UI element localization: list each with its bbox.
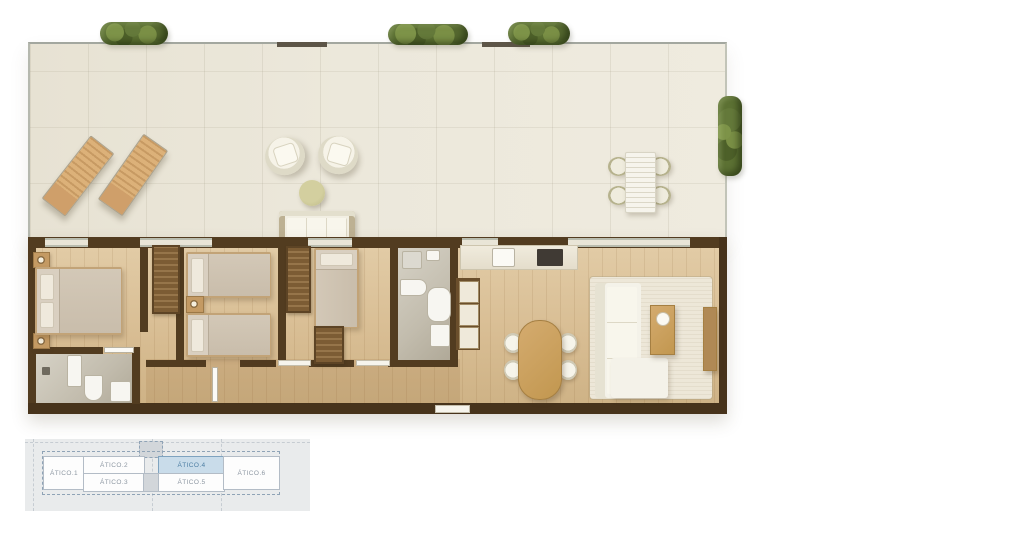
key-plan: ÁTICO.1 ÁTICO.2 ÁTICO.3 ÁTICO.4 ÁTICO.5 … — [25, 439, 310, 511]
toilet — [400, 279, 427, 296]
wall-segment — [240, 360, 276, 367]
nightstand — [33, 252, 50, 268]
pillow — [191, 319, 204, 352]
duvet — [208, 254, 270, 296]
door-threshold — [278, 360, 311, 366]
duvet — [59, 269, 121, 333]
double-bed — [35, 267, 122, 335]
coffee-table — [650, 305, 675, 355]
keyplan-unit-atico1[interactable]: ÁTICO.1 — [43, 456, 85, 490]
twin-bed — [186, 313, 271, 357]
keyplan-unit-atico5[interactable]: ÁTICO.5 — [158, 473, 225, 492]
lamp — [37, 256, 45, 264]
terrace-tile-grid — [30, 44, 725, 240]
plant-hedge — [388, 24, 468, 45]
armchair-cushion — [272, 142, 299, 168]
sink — [110, 381, 131, 402]
window — [308, 238, 352, 247]
pillow — [320, 253, 353, 266]
keyplan-unit-atico6[interactable]: ÁTICO.6 — [223, 456, 280, 490]
wall-segment — [28, 403, 727, 414]
wall-segment — [140, 248, 148, 332]
sliding-door — [568, 238, 690, 247]
toilet — [84, 375, 103, 401]
keyplan-unit-atico3[interactable]: ÁTICO.3 — [83, 473, 145, 492]
shower — [67, 355, 82, 387]
dining-table — [518, 320, 562, 400]
pillow — [191, 258, 204, 293]
grid-line — [33, 439, 34, 511]
twin-bed — [186, 252, 271, 298]
tv-bench — [703, 307, 717, 371]
wall-segment — [388, 360, 458, 367]
wall-segment — [390, 248, 398, 360]
shelf-cubby — [459, 327, 479, 349]
wall-segment — [132, 347, 140, 404]
cooktop — [537, 249, 563, 266]
window — [45, 238, 88, 247]
armchair-cushion — [326, 142, 353, 167]
plant-hedge — [718, 96, 742, 176]
sofa-seat-cushions — [287, 218, 347, 237]
wall-segment — [719, 237, 727, 414]
decor-bowl — [656, 312, 670, 326]
door-leaf — [212, 367, 218, 402]
railing-planter-segment — [277, 42, 327, 47]
wall-cabinet — [426, 250, 440, 261]
unit-label: ÁTICO.2 — [100, 462, 128, 469]
wardrobe — [286, 246, 311, 313]
outdoor-dining-table — [625, 152, 656, 213]
door-threshold — [356, 360, 390, 366]
sink — [430, 324, 450, 347]
nightstand — [186, 296, 204, 313]
floor-plan-render — [28, 38, 728, 414]
pillow — [40, 302, 54, 328]
wall-segment — [146, 360, 206, 367]
wardrobe — [152, 245, 180, 314]
grid-line — [25, 442, 310, 443]
single-bed — [314, 248, 359, 328]
shower-head — [42, 367, 50, 375]
wardrobe — [314, 326, 344, 364]
plant-hedge — [508, 22, 570, 45]
lamp — [190, 300, 198, 308]
outdoor-side-table — [299, 180, 325, 206]
terrace — [28, 42, 727, 240]
washing-machine — [402, 251, 422, 269]
duvet — [208, 315, 270, 355]
entrance-door — [435, 405, 470, 413]
duvet — [316, 269, 357, 327]
shelving-unit — [456, 278, 480, 350]
unit-label: ÁTICO.5 — [177, 479, 205, 486]
wall-segment — [278, 248, 286, 360]
nightstand — [33, 333, 50, 349]
sofa-chaise — [611, 358, 668, 398]
unit-label: ÁTICO.1 — [50, 470, 78, 477]
outdoor-sofa — [279, 211, 355, 240]
bathtub — [427, 287, 451, 322]
shelf-cubby — [459, 304, 479, 326]
unit-label: ÁTICO.3 — [100, 479, 128, 486]
lamp — [37, 337, 45, 345]
shelf-cubby — [459, 281, 479, 303]
door-leaf — [104, 347, 134, 353]
plant-hedge — [100, 22, 168, 45]
unit-label: ÁTICO.6 — [237, 470, 265, 477]
unit-label: ÁTICO.4 — [177, 462, 205, 469]
kitchen-sink — [492, 248, 515, 267]
interior — [28, 237, 727, 414]
pillow — [40, 274, 54, 300]
